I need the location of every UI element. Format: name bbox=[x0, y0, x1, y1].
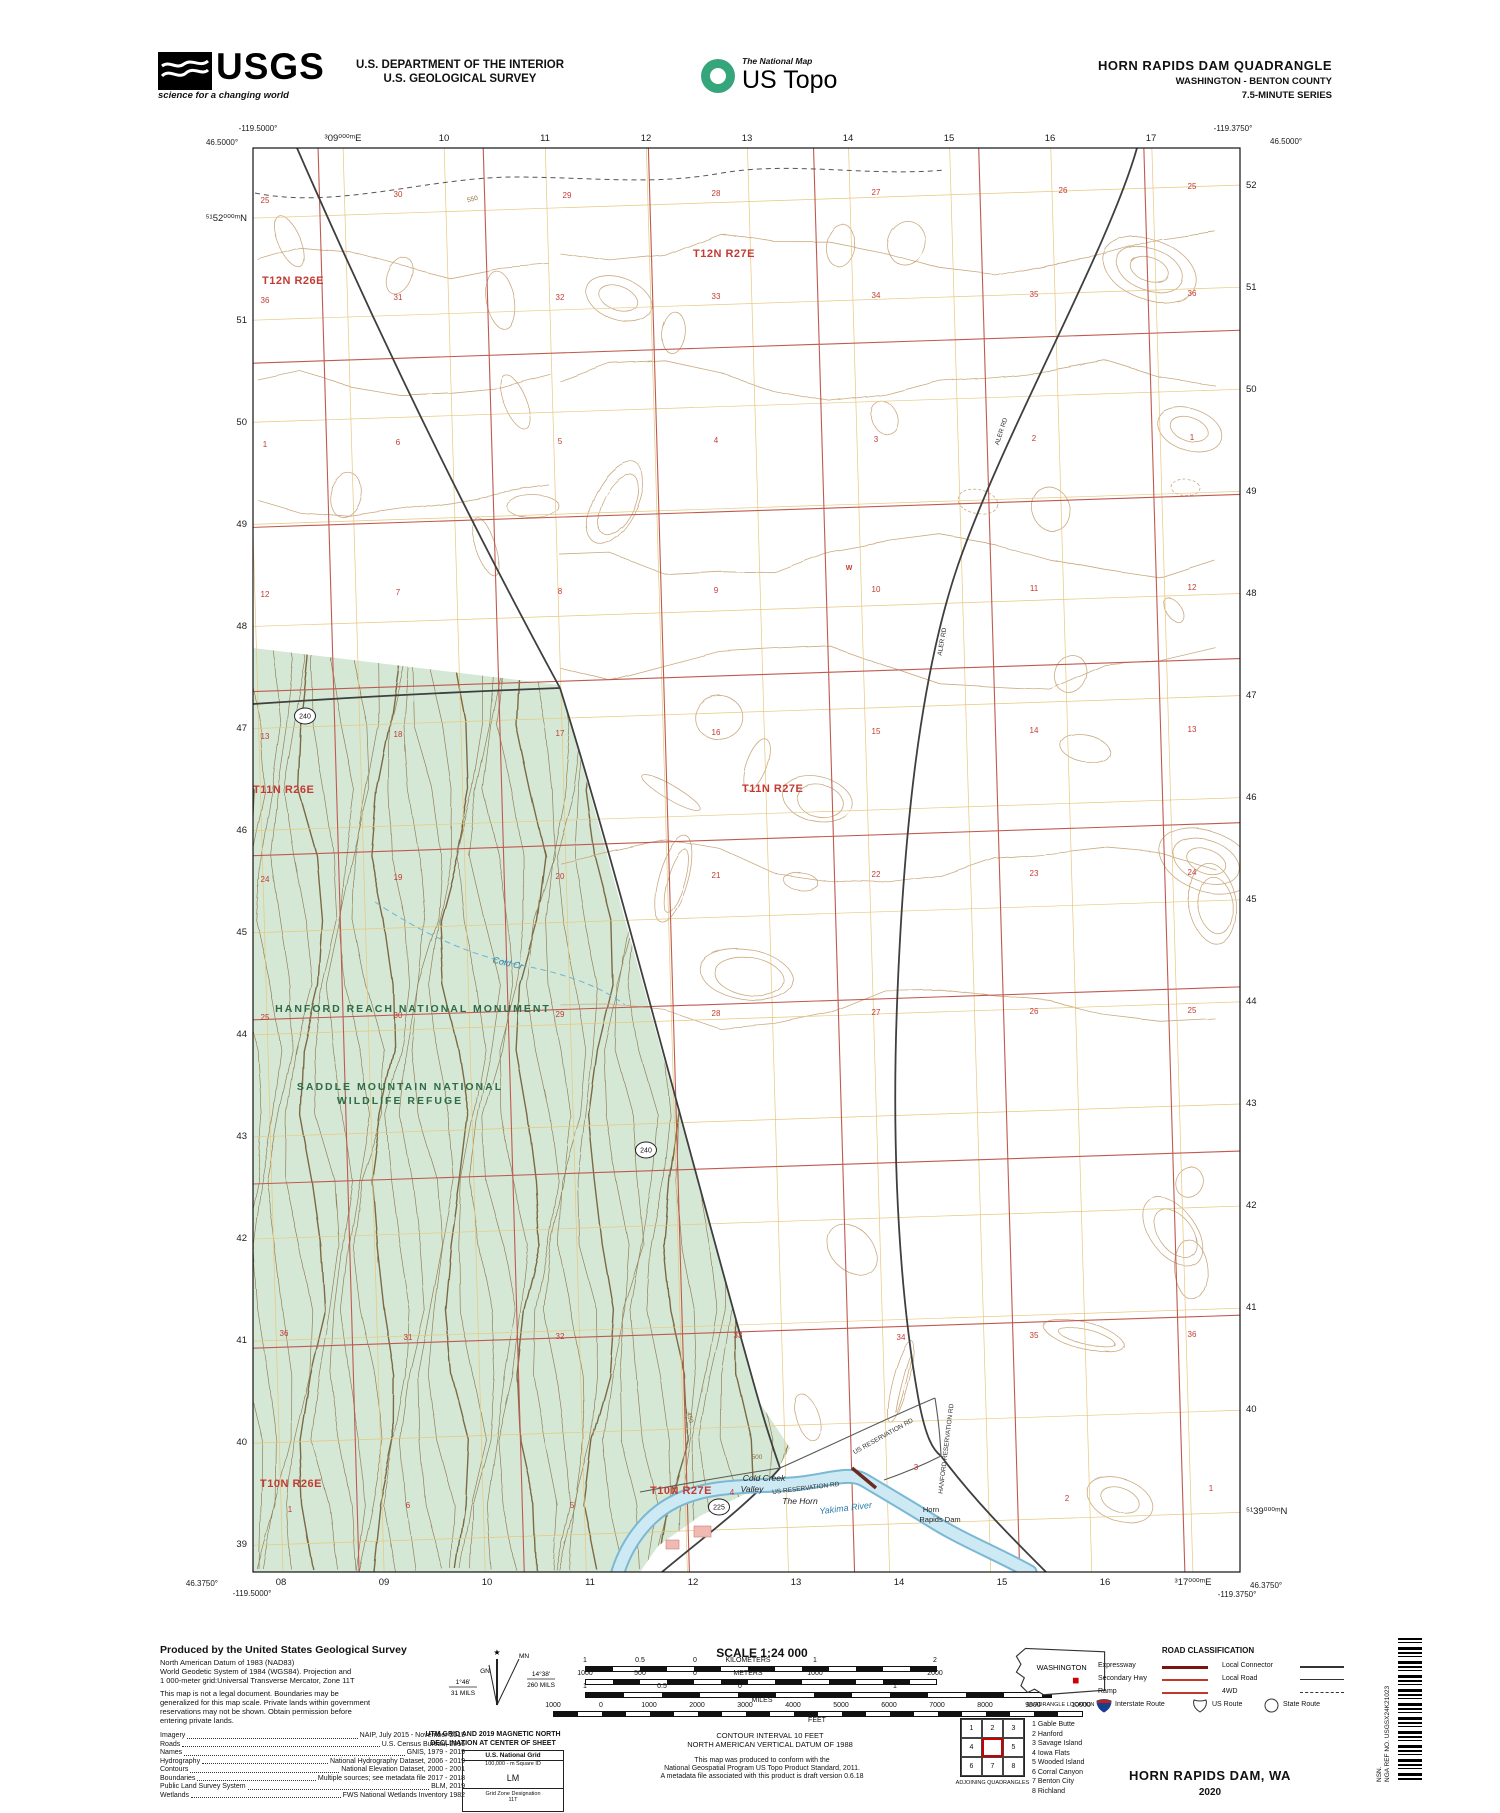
map-label: 51 bbox=[1246, 282, 1257, 293]
map-label: 7 bbox=[396, 588, 401, 597]
map-label: WILDLIFE REFUGE bbox=[337, 1095, 463, 1107]
map-label: 42 bbox=[236, 1233, 247, 1244]
svg-text:★: ★ bbox=[493, 1648, 500, 1657]
map-label: 16 bbox=[1045, 133, 1056, 144]
map-label: 49 bbox=[236, 519, 247, 530]
map-label: 46.3750° bbox=[186, 1579, 218, 1588]
feet-unit: FEET bbox=[808, 1717, 826, 1724]
credit-row: Public Land Survey SystemBLM, 2019 bbox=[160, 1783, 465, 1792]
map-label: ⁵¹52⁰⁰⁰ᵐN bbox=[206, 213, 248, 224]
map-label: 44 bbox=[1246, 996, 1257, 1007]
map-label: 49 bbox=[1246, 486, 1257, 497]
map-label: 29 bbox=[556, 1010, 565, 1019]
scale-label: 8000 bbox=[977, 1702, 993, 1709]
credit-row: BoundariesMultiple sources; see metadata… bbox=[160, 1775, 465, 1784]
adjoining-quad-cell: 1 bbox=[961, 1719, 982, 1738]
declination-caption: UTM GRID AND 2019 MAGNETIC NORTH DECLINA… bbox=[398, 1730, 588, 1748]
map-label: 36 bbox=[280, 1329, 289, 1338]
scale-label: 3000 bbox=[737, 1702, 753, 1709]
map-label: 25 bbox=[261, 196, 270, 205]
state-route-circle-icon bbox=[1264, 1698, 1279, 1713]
adjoining-quad-cell: 8 bbox=[1003, 1757, 1024, 1776]
map-label: 34 bbox=[872, 291, 881, 300]
map-label: 17 bbox=[1146, 133, 1157, 144]
road-class-swatch bbox=[1300, 1692, 1344, 1693]
map-label: 5 bbox=[558, 437, 563, 446]
map-label: 34 bbox=[897, 1333, 906, 1342]
topo-map: 2530292827262536313233343536165432112789… bbox=[0, 0, 1500, 1813]
map-label: 16 bbox=[712, 728, 721, 737]
road-classification-title: ROAD CLASSIFICATION bbox=[1118, 1646, 1298, 1655]
map-label: 10 bbox=[482, 1577, 493, 1588]
map-label: 43 bbox=[1246, 1098, 1257, 1109]
map-label: The Horn bbox=[782, 1496, 818, 1506]
map-label: 15 bbox=[944, 133, 955, 144]
scale-label: 1000 bbox=[577, 1670, 593, 1677]
scale-label: 2 bbox=[933, 1657, 937, 1664]
map-label: 15 bbox=[872, 727, 881, 736]
scale-label: 0.5 bbox=[657, 1683, 667, 1690]
scale-label: 0 bbox=[738, 1683, 742, 1690]
map-label: Valley bbox=[741, 1484, 765, 1494]
map-label: 500 bbox=[752, 1454, 763, 1461]
map-label: T12N R27E bbox=[693, 248, 755, 260]
map-label: ³17⁰⁰⁰ᵐE bbox=[1175, 1577, 1212, 1588]
trail-dashed bbox=[255, 168, 945, 197]
map-label: 14 bbox=[843, 133, 854, 144]
map-label: 14 bbox=[1030, 726, 1039, 735]
svg-text:WASHINGTON: WASHINGTON bbox=[1037, 1663, 1087, 1672]
adjoining-quad-cell: 5 bbox=[1003, 1738, 1024, 1757]
road-class-label: Expressway bbox=[1098, 1662, 1136, 1669]
svg-text:MN: MN bbox=[519, 1653, 529, 1660]
map-label: Yakima River bbox=[819, 1500, 874, 1516]
map-label: 27 bbox=[872, 188, 881, 197]
scale-label: 2000 bbox=[927, 1670, 943, 1677]
adjoining-quad-cell: 4 bbox=[961, 1738, 982, 1757]
map-label: ³09⁰⁰⁰ᵐE bbox=[325, 133, 362, 144]
map-label: 40 bbox=[1246, 1404, 1257, 1415]
map-label: 36 bbox=[1188, 1330, 1197, 1339]
datum-note-line: 1 000-meter grid:Universal Transverse Me… bbox=[160, 1676, 465, 1685]
map-label: 10 bbox=[439, 133, 450, 144]
scale-label: 9000 bbox=[1025, 1702, 1041, 1709]
map-label: 14 bbox=[894, 1577, 905, 1588]
credit-row: WetlandsFWS National Wetlands Inventory … bbox=[160, 1792, 465, 1801]
map-label: 25 bbox=[1188, 1006, 1197, 1015]
scale-label: 1 bbox=[583, 1683, 587, 1690]
legal-note-line: reservations may not be shown. Obtain pe… bbox=[160, 1707, 465, 1716]
map-label: 41 bbox=[236, 1335, 247, 1346]
road-class-label: 4WD bbox=[1222, 1688, 1238, 1695]
scale-label: 4000 bbox=[785, 1702, 801, 1709]
adjoining-quad-cell: 2 bbox=[982, 1719, 1003, 1738]
quad-location-marker bbox=[1073, 1678, 1079, 1684]
map-label: 36 bbox=[261, 296, 270, 305]
map-label: 21 bbox=[712, 871, 721, 880]
datum-notes: North American Datum of 1983 (NAD83)Worl… bbox=[160, 1658, 465, 1685]
map-label: 27 bbox=[872, 1008, 881, 1017]
usng-box: U.S. National Grid 100,000 - m Square ID… bbox=[462, 1750, 564, 1812]
map-label: 4 bbox=[730, 1488, 735, 1497]
map-label: 15 bbox=[997, 1577, 1008, 1588]
map-label: -119.5000° bbox=[239, 124, 278, 133]
built-up-area bbox=[694, 1526, 711, 1537]
map-label: 33 bbox=[712, 292, 721, 301]
map-label: 550 bbox=[466, 195, 479, 205]
map-label: 25 bbox=[1188, 182, 1197, 191]
sheet-title: HORN RAPIDS DAM, WA bbox=[1100, 1768, 1320, 1783]
map-label: 26 bbox=[1030, 1007, 1039, 1016]
scale-label: 0.5 bbox=[635, 1657, 645, 1664]
map-label: 6 bbox=[396, 438, 401, 447]
map-label: 44 bbox=[236, 1029, 247, 1040]
scale-label: 7000 bbox=[929, 1702, 945, 1709]
map-label: 240 bbox=[299, 714, 311, 721]
adjoining-quad-cell: 3 bbox=[1003, 1719, 1024, 1738]
svg-text:260 MILS: 260 MILS bbox=[527, 1682, 555, 1689]
road-class-swatch bbox=[1162, 1679, 1208, 1681]
map-label: 42 bbox=[1246, 1200, 1257, 1211]
map-label: 30 bbox=[394, 190, 403, 199]
scale-label: 0 bbox=[693, 1670, 697, 1677]
map-label: 13 bbox=[261, 732, 270, 741]
map-label: 46 bbox=[236, 825, 247, 836]
map-label: 17 bbox=[556, 729, 565, 738]
scale-label: 1 bbox=[583, 1657, 587, 1664]
map-label: 52 bbox=[1246, 180, 1257, 191]
map-label: 13 bbox=[1188, 725, 1197, 734]
map-label: 13 bbox=[791, 1577, 802, 1588]
map-label: 9 bbox=[714, 586, 719, 595]
map-label: 5 bbox=[570, 1501, 575, 1510]
map-label: 35 bbox=[1030, 290, 1039, 299]
map-label: 20 bbox=[556, 872, 565, 881]
map-label: ⁵¹39⁰⁰⁰ᵐN bbox=[1246, 1506, 1288, 1517]
map-label: 23 bbox=[1030, 869, 1039, 878]
map-label: 46.5000° bbox=[206, 138, 238, 147]
map-label: 1 bbox=[263, 440, 268, 449]
scale-label: 0 bbox=[693, 1657, 697, 1664]
map-label: T12N R26E bbox=[262, 275, 324, 287]
built-up-area bbox=[666, 1540, 679, 1549]
svg-text:1°46': 1°46' bbox=[456, 1678, 471, 1686]
adjoining-quad-cell: 6 bbox=[961, 1757, 982, 1776]
svg-text:GN: GN bbox=[480, 1668, 490, 1675]
map-label: 32 bbox=[556, 1332, 565, 1341]
state-route-label: State Route bbox=[1283, 1701, 1320, 1708]
map-label: 28 bbox=[712, 189, 721, 198]
map-label: 50 bbox=[236, 417, 247, 428]
road-class-label: Secondary Hwy bbox=[1098, 1675, 1147, 1682]
map-label: 12 bbox=[688, 1577, 699, 1588]
legal-note-line: generalized for this map scale. Private … bbox=[160, 1698, 465, 1707]
hanford-reservation-rd bbox=[884, 1398, 941, 1480]
map-label: 33 bbox=[734, 1331, 743, 1340]
credit-row: ContoursNational Elevation Dataset, 2000… bbox=[160, 1766, 465, 1775]
scale-label: 2000 bbox=[689, 1702, 705, 1709]
map-label: 3 bbox=[874, 435, 879, 444]
credit-row: HydrographyNational Hydrography Dataset,… bbox=[160, 1758, 465, 1767]
map-label: 46.3750° bbox=[1250, 1581, 1282, 1590]
map-label: ALER RD bbox=[994, 417, 1009, 446]
map-label: 24 bbox=[261, 875, 270, 884]
map-label: 2 bbox=[1032, 434, 1037, 443]
map-label: 28 bbox=[712, 1009, 721, 1018]
legal-notes: This map is not a legal document. Bounda… bbox=[160, 1689, 465, 1725]
sidebar-reference-numbers: NSN. NGA REF NO. USGSX24K21023 bbox=[1376, 1632, 1392, 1782]
road-class-swatch bbox=[1162, 1692, 1208, 1694]
road-class-swatch bbox=[1162, 1666, 1208, 1669]
adjoining-quad-cell: 7 bbox=[982, 1757, 1003, 1776]
scale-label: 0 bbox=[599, 1702, 603, 1709]
scale-label: 5000 bbox=[833, 1702, 849, 1709]
interstate-route-label: Interstate Route bbox=[1115, 1701, 1165, 1708]
map-label: 18 bbox=[394, 730, 403, 739]
map-label: 45 bbox=[236, 927, 247, 938]
road-class-swatch bbox=[1300, 1666, 1344, 1668]
credit-row: NamesGNIS, 1979 - 2019 bbox=[160, 1749, 465, 1758]
contour-note: CONTOUR INTERVAL 10 FEET bbox=[716, 1731, 823, 1740]
map-label: 11 bbox=[585, 1577, 595, 1588]
map-label: 240 bbox=[640, 1148, 652, 1155]
map-label: 25 bbox=[261, 1013, 270, 1022]
map-label: W bbox=[846, 565, 853, 572]
scale-label: 1 bbox=[893, 1683, 897, 1690]
us-route-label: US Route bbox=[1212, 1701, 1242, 1708]
adjoining-quad-name: 4 Iowa Flats bbox=[1032, 1749, 1142, 1759]
map-label: 43 bbox=[236, 1131, 247, 1142]
map-label: 1 bbox=[288, 1505, 293, 1514]
scale-label: 1000 bbox=[641, 1702, 657, 1709]
map-label: 3 bbox=[914, 1463, 919, 1472]
map-label: 12 bbox=[1188, 583, 1197, 592]
scale-label: 10000 bbox=[1071, 1702, 1090, 1709]
map-label: -119.3750° bbox=[1218, 1590, 1257, 1599]
map-label: 48 bbox=[236, 621, 247, 632]
map-label: SADDLE MOUNTAIN NATIONAL bbox=[297, 1081, 503, 1093]
map-label: 11 bbox=[540, 133, 550, 144]
map-label: Cold Cr bbox=[238, 686, 253, 719]
map-label: 31 bbox=[404, 1333, 413, 1342]
svg-text:31 MILS: 31 MILS bbox=[451, 1690, 476, 1697]
datum-note-line: North American Datum of 1983 (NAD83) bbox=[160, 1658, 465, 1667]
map-label: 09 bbox=[379, 1577, 390, 1588]
adjoining-quad-name: 2 Hanford bbox=[1032, 1730, 1142, 1740]
road-class-swatch bbox=[1300, 1679, 1344, 1680]
map-label: T10N R27E bbox=[650, 1485, 712, 1497]
map-label: 12 bbox=[261, 590, 270, 599]
map-label: 29 bbox=[563, 191, 572, 200]
road-class-label: Local Connector bbox=[1222, 1662, 1273, 1669]
map-label: 1 bbox=[1190, 433, 1195, 442]
map-label: 1 bbox=[1209, 1484, 1214, 1493]
conform-line: A metadata file associated with this pro… bbox=[660, 1773, 863, 1780]
map-label: Cold Creek bbox=[743, 1473, 786, 1483]
map-label: 48 bbox=[1246, 588, 1257, 599]
legal-note-line: entering private lands. bbox=[160, 1716, 465, 1725]
sheet-year: 2020 bbox=[1100, 1787, 1320, 1798]
map-label: 12 bbox=[641, 133, 652, 144]
road-class-label: Ramp bbox=[1098, 1688, 1117, 1695]
scale-label: 1000 bbox=[545, 1702, 561, 1709]
conform-line: National Geospatial Program US Topo Prod… bbox=[664, 1765, 860, 1772]
produced-by-title: Produced by the United States Geological… bbox=[160, 1646, 465, 1655]
map-label: 47 bbox=[1246, 690, 1257, 701]
adjoining-quadrangles-grid: 12345678 bbox=[960, 1718, 1025, 1777]
map-label: 46 bbox=[1246, 792, 1257, 803]
map-label: 35 bbox=[1030, 1331, 1039, 1340]
adjoining-quad-name: 3 Savage Island bbox=[1032, 1739, 1142, 1749]
conform-line: This map was produced to conform with th… bbox=[694, 1757, 829, 1764]
map-label: 6 bbox=[406, 1501, 411, 1510]
svg-text:14°38': 14°38' bbox=[532, 1670, 550, 1678]
wildlife-refuge-area bbox=[253, 648, 790, 1572]
map-label: 26 bbox=[1059, 186, 1068, 195]
map-label: Horn bbox=[923, 1505, 939, 1514]
scale-label: 500 bbox=[634, 1670, 646, 1677]
map-label: 13 bbox=[742, 133, 753, 144]
map-label: Rapids Dam bbox=[919, 1515, 960, 1524]
this-quadrangle-cell bbox=[982, 1738, 1003, 1757]
map-label: 45 bbox=[1246, 894, 1257, 905]
map-label: 16 bbox=[1100, 1577, 1111, 1588]
map-label: 08 bbox=[276, 1577, 287, 1588]
highway-240 bbox=[297, 148, 560, 688]
legal-note-line: This map is not a legal document. Bounda… bbox=[160, 1689, 465, 1698]
map-label: 19 bbox=[394, 873, 403, 882]
scale-label: 6000 bbox=[881, 1702, 897, 1709]
us-route-shield-icon bbox=[1192, 1698, 1208, 1713]
map-label: 11 bbox=[1030, 584, 1039, 593]
map-label: 50 bbox=[1246, 384, 1257, 395]
map-label: -119.3750° bbox=[1214, 124, 1253, 133]
datum-note: NORTH AMERICAN VERTICAL DATUM OF 1988 bbox=[687, 1740, 853, 1749]
scale-label: 1 bbox=[813, 1657, 817, 1664]
map-label: 4 bbox=[714, 436, 719, 445]
interstate-shield-icon bbox=[1096, 1698, 1112, 1713]
map-label: T11N R26E bbox=[253, 784, 314, 796]
map-label: 31 bbox=[394, 293, 403, 302]
map-label: T10N R26E bbox=[260, 1478, 322, 1490]
scale-label: METERS bbox=[733, 1670, 762, 1677]
miles-unit: MILES bbox=[751, 1697, 772, 1704]
scale-label: KILOMETERS bbox=[725, 1657, 770, 1664]
map-label: 36 bbox=[1188, 289, 1197, 298]
map-label: 225 bbox=[713, 1505, 725, 1512]
map-label: 51 bbox=[236, 315, 247, 326]
map-label: 8 bbox=[558, 587, 563, 596]
production-notes: Produced by the United States Geological… bbox=[160, 1646, 465, 1800]
map-label: 41 bbox=[1246, 1302, 1257, 1313]
scale-bar-mi bbox=[585, 1692, 1052, 1698]
map-label: -119.5000° bbox=[233, 1589, 272, 1598]
map-label: T11N R27E bbox=[742, 783, 803, 795]
scale-bar-m bbox=[585, 1679, 937, 1685]
map-label: 22 bbox=[872, 870, 881, 879]
map-label: 24 bbox=[1188, 868, 1197, 877]
map-label: 2 bbox=[1065, 1494, 1070, 1503]
barcode bbox=[1398, 1638, 1422, 1780]
map-label: HANFORD REACH NATIONAL MONUMENT bbox=[275, 1003, 551, 1015]
road-class-label: Local Road bbox=[1222, 1675, 1257, 1682]
map-label: 46.5000° bbox=[1270, 137, 1302, 146]
map-label: 10 bbox=[872, 585, 881, 594]
map-label: 39 bbox=[236, 1539, 247, 1550]
datum-note-line: World Geodetic System of 1984 (WGS84). P… bbox=[160, 1667, 465, 1676]
map-label: 47 bbox=[236, 723, 247, 734]
scale-label: 1000 bbox=[807, 1670, 823, 1677]
map-label: 40 bbox=[236, 1437, 247, 1448]
adjoining-quad-name: 1 Gable Butte bbox=[1032, 1720, 1142, 1730]
adjoining-quad-name: 5 Wooded Island bbox=[1032, 1758, 1142, 1768]
map-label: 32 bbox=[556, 293, 565, 302]
adjoining-quadrangles-caption: ADJOINING QUADRANGLES bbox=[935, 1780, 1050, 1786]
